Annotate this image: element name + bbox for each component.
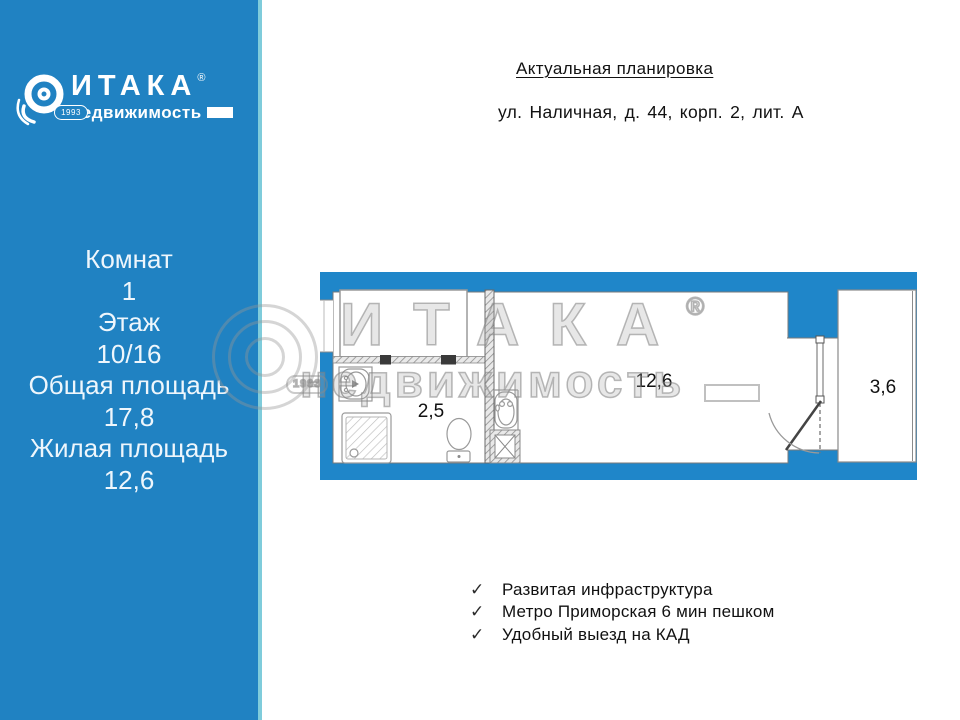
- check-icon: ✓: [470, 602, 488, 622]
- logo-wordmark: ИТАКА®: [71, 72, 205, 100]
- bathroom-partition-wall: [333, 355, 485, 365]
- feature-item: ✓ Удобный выезд на КАД: [470, 625, 774, 647]
- page-title: Актуальная планировка: [516, 59, 713, 79]
- feature-list: ✓ Развитая инфраструктура ✓ Метро Примор…: [470, 580, 774, 647]
- detail-total-area-value: 17,8: [0, 402, 258, 434]
- kitchen-sink: [494, 390, 518, 430]
- property-address: ул. Наличная, д. 44, корп. 2, лит. А: [498, 102, 804, 123]
- detail-floor-label: Этаж: [0, 307, 258, 339]
- detail-rooms-value: 1: [0, 276, 258, 308]
- check-icon: ✓: [470, 625, 488, 645]
- floor-plan-drawing: 2,5 12,6 3,6: [320, 272, 917, 480]
- entry-hall: [340, 290, 467, 357]
- slide: ИТАКА® недвижимость 1993 Комнат 1 Этаж 1…: [0, 0, 960, 720]
- detail-living-area-label: Жилая площадь: [0, 433, 258, 465]
- check-icon: ✓: [470, 580, 488, 600]
- balcony-opening: [788, 339, 839, 450]
- feature-item: ✓ Метро Приморская 6 мин пешком: [470, 602, 774, 624]
- detail-living-area-value: 12,6: [0, 465, 258, 497]
- feature-item: ✓ Развитая инфраструктура: [470, 580, 774, 602]
- shower-tray: [342, 413, 391, 463]
- ventilation-shaft: [490, 430, 520, 463]
- sidebar-edge-line: [258, 0, 262, 720]
- logo-subtitle: недвижимость: [71, 104, 202, 121]
- toilet: [447, 419, 471, 463]
- feature-text: Развитая инфраструктура: [502, 580, 713, 600]
- sidebar: ИТАКА® недвижимость 1993 Комнат 1 Этаж 1…: [0, 0, 258, 720]
- bathroom-sink: [339, 367, 372, 401]
- feature-text: Удобный выезд на КАД: [502, 625, 690, 645]
- detail-floor-value: 10/16: [0, 339, 258, 371]
- living-room-area-label: 12,6: [636, 371, 673, 392]
- registered-mark-icon: ®: [197, 72, 205, 84]
- balcony-area: [838, 290, 916, 462]
- entrance-wall-gap: [320, 300, 333, 352]
- balcony-area-label: 3,6: [870, 377, 896, 398]
- bathroom-area-label: 2,5: [418, 401, 444, 422]
- itaka-logo: ИТАКА® недвижимость 1993: [14, 66, 246, 128]
- logo-brand: ИТАКА: [71, 70, 197, 102]
- logo-year-badge: 1993: [54, 105, 88, 120]
- detail-total-area-label: Общая площадь: [0, 370, 258, 402]
- detail-rooms-label: Комнат: [0, 244, 258, 276]
- feature-text: Метро Приморская 6 мин пешком: [502, 602, 774, 622]
- floor-plan: 2,5 12,6 3,6: [320, 272, 917, 480]
- logo-underline-bar: [207, 107, 233, 118]
- property-details: Комнат 1 Этаж 10/16 Общая площадь 17,8 Ж…: [0, 244, 258, 496]
